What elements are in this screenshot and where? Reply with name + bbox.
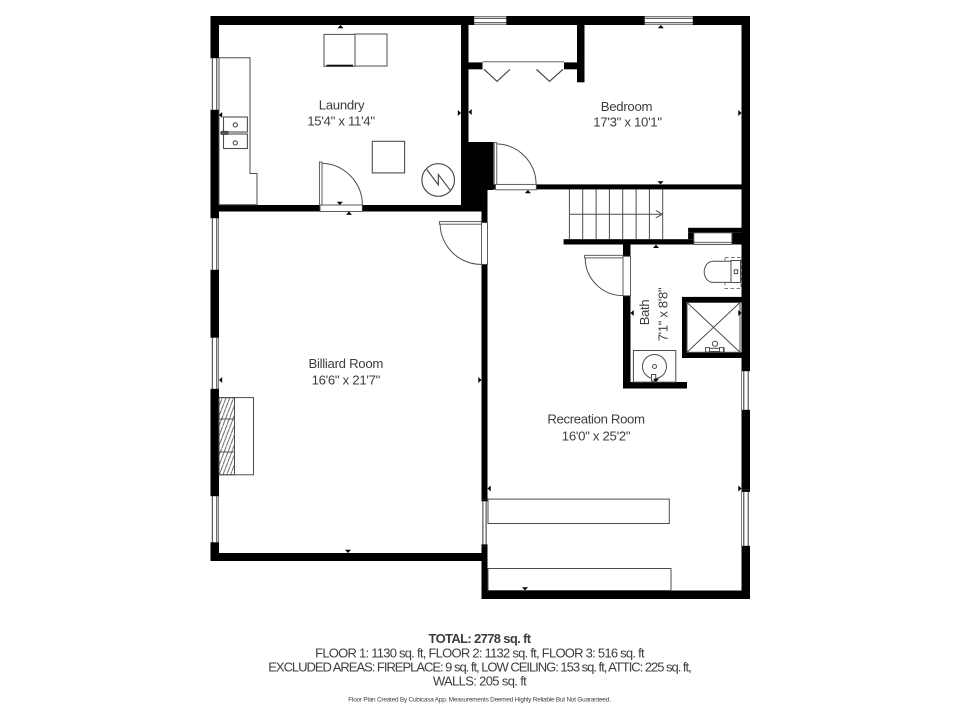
- svg-text:TOTAL: 2778 sq. ft: TOTAL: 2778 sq. ft: [429, 631, 532, 646]
- svg-text:Laundry: Laundry: [319, 97, 365, 112]
- svg-text:Billiard Room: Billiard Room: [309, 356, 384, 371]
- svg-text:7'1" x 8'8": 7'1" x 8'8": [656, 287, 671, 341]
- svg-text:16'0" x 25'2": 16'0" x 25'2": [562, 429, 631, 444]
- svg-text:WALLS: 205 sq. ft: WALLS: 205 sq. ft: [433, 674, 527, 689]
- svg-text:16'6" x 21'7": 16'6" x 21'7": [312, 373, 381, 388]
- svg-text:EXCLUDED AREAS: FIREPLACE: 9 s: EXCLUDED AREAS: FIREPLACE: 9 sq. ft, LOW…: [268, 660, 691, 675]
- svg-text:Bedroom: Bedroom: [601, 99, 653, 114]
- svg-text:Bath: Bath: [637, 300, 652, 326]
- svg-text:15'4" x 11'4": 15'4" x 11'4": [307, 114, 375, 129]
- svg-text:FLOOR 1: 1130 sq. ft, FLOOR 2:: FLOOR 1: 1130 sq. ft, FLOOR 2: 1132 sq. …: [315, 645, 645, 660]
- svg-text:17'3" x 10'1": 17'3" x 10'1": [593, 115, 662, 130]
- svg-text:Recreation Room: Recreation Room: [547, 412, 645, 427]
- svg-text:Floor Plan Created By Cubicasa: Floor Plan Created By Cubicasa App. Meas…: [348, 697, 611, 704]
